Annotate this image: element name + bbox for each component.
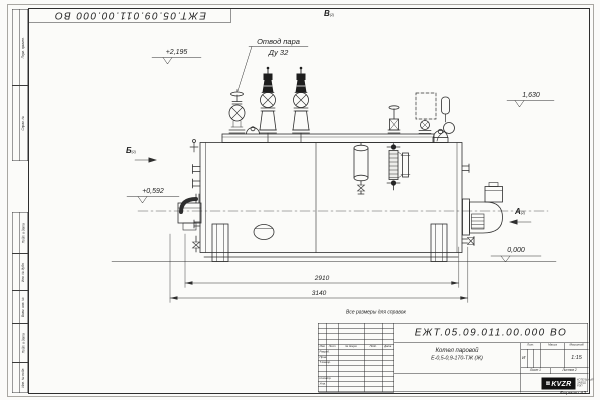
- tb-col-data: Дата: [382, 345, 394, 348]
- kvzr-logo: ▦ KVZR: [542, 378, 576, 390]
- margin-label: Инв. № дубл.: [22, 262, 26, 282]
- tb-col-list: Лист: [327, 345, 339, 348]
- margin-column: Перв. примен. Справ. № Подп. и дата Инв.…: [12, 9, 28, 392]
- view-label-top: В(2): [324, 9, 334, 18]
- tb-col-podp: Подп.: [365, 345, 383, 348]
- sheet-no: Лист 1: [521, 369, 551, 373]
- steam-outlet-label-line1: Отвод пара: [249, 37, 308, 46]
- doc-number-flipped: ЕЖТ.05.09.011.00.000 ВО: [53, 9, 205, 21]
- margin-box: Подп. и дата: [12, 212, 28, 254]
- dim-3140-label: 3140: [299, 290, 339, 297]
- doc-number: ЕЖТ.05.09.011.00.000 ВО: [394, 327, 589, 339]
- tb-role-utv: Утв.: [320, 382, 326, 385]
- margin-label: Инв. № подл.: [22, 368, 26, 388]
- margin-label: Подп. и дата: [22, 333, 26, 353]
- product-title-line2: Е-0,5-0,9-170-ТЖ (Ж): [394, 355, 521, 361]
- liter-value: И: [521, 355, 528, 360]
- tb-role-tkontr: Т.контр.: [320, 361, 331, 364]
- tb-role-prov: Пров.: [320, 356, 327, 359]
- margin-label: Взам. инв. №: [22, 297, 26, 317]
- margin-box: Справ. №: [12, 85, 28, 161]
- scale-value: 1:15: [565, 355, 589, 361]
- view-label-right: А(2): [515, 207, 525, 216]
- margin-box: Перв. примен.: [12, 9, 28, 86]
- doc-number-flipped-box: ЕЖТ.05.09.011.00.000 ВО: [28, 8, 230, 22]
- margin-box: Инв. № дубл.: [12, 253, 28, 291]
- product-title-line1: Котел паровой: [394, 347, 521, 354]
- dim-2910-label: 2910: [302, 275, 342, 282]
- engineering-drawing-sheet: Перв. примен. Справ. № Подп. и дата Инв.…: [0, 0, 600, 400]
- sheets-total: Листов 2: [551, 369, 589, 373]
- margin-box: Подп. и дата: [12, 323, 28, 363]
- tb-role-nkontr: Н.контр.: [320, 377, 332, 380]
- tb-mass-header: Масса: [541, 344, 565, 347]
- margin-label: Справ. №: [22, 116, 26, 131]
- title-block: Изм. Лист № докум. Подп. Дата Разраб. Пр…: [318, 323, 588, 392]
- elevation-platform: +2,195: [153, 49, 200, 56]
- kvzr-logo-text: KVZR: [551, 380, 571, 388]
- view-left-sheet-ref: (2): [132, 150, 136, 154]
- elevation-ground: 0,000: [492, 247, 540, 254]
- tb-role-razrab: Разраб.: [320, 351, 330, 354]
- tb-lit-header: Лит.: [521, 344, 541, 347]
- format-label: Формат А3: [540, 391, 586, 396]
- view-label-left: Б(2): [126, 146, 136, 155]
- kvzr-logo-mark: ▦: [546, 381, 551, 386]
- elevation-gauge: 1,630: [509, 92, 553, 99]
- elevation-pump: +0,592: [128, 188, 178, 195]
- company-name: КОТЕЛЬНЫЙ ЗАВОД РЭП: [577, 379, 589, 388]
- view-right-sheet-ref: (2): [521, 211, 525, 215]
- tb-scale-header: Масштаб: [565, 344, 589, 347]
- margin-box: Взам. инв. №: [12, 290, 28, 324]
- reference-note: Все размеры для справок: [346, 310, 406, 316]
- margin-label: Подп. и дата: [22, 223, 26, 243]
- view-top-sheet-ref: (2): [330, 13, 334, 17]
- margin-box: Инв. № подл.: [12, 362, 28, 393]
- margin-label: Перв. примен.: [22, 37, 26, 58]
- tb-col-izm: Изм.: [319, 345, 327, 348]
- steam-outlet-label-line2: Ду 32: [249, 48, 308, 57]
- tb-col-ndokum: № докум.: [338, 345, 365, 348]
